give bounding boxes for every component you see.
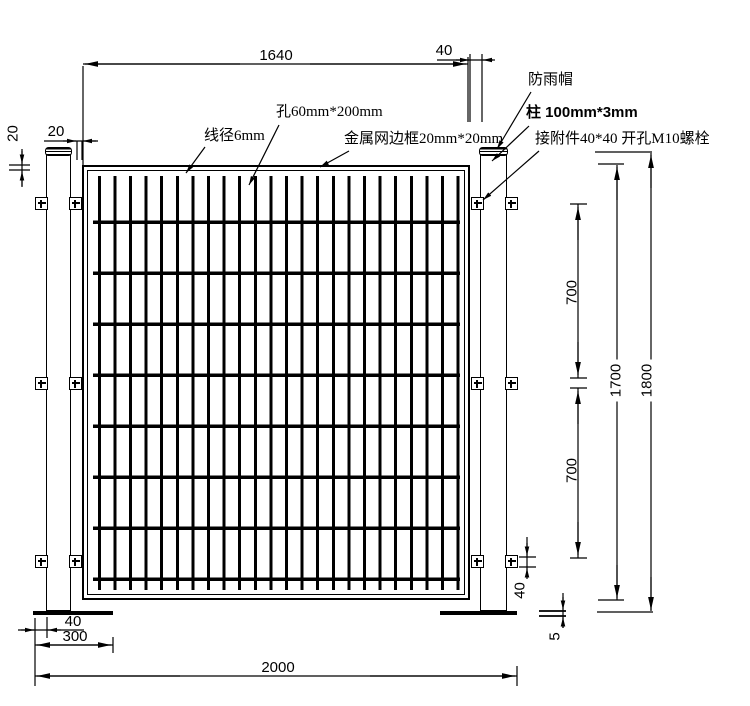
dim-text-clip-spacing-upper: 700 — [565, 276, 580, 310]
dim-20-horizontal — [44, 141, 98, 160]
label-wire-diameter: 线径6mm — [204, 129, 265, 144]
dim-text-plate-thickness: 5 — [548, 629, 563, 645]
dim-1640 — [83, 57, 468, 192]
dim-text-mesh-height: 1700 — [609, 360, 624, 402]
dim-text-clip-spacing-lower: 700 — [565, 454, 580, 488]
dim-text-overall-width: 2000 — [243, 660, 313, 675]
label-post-spec: 柱 100mm*3mm — [526, 105, 638, 120]
label-mesh-hole: 孔60mm*200mm — [276, 105, 383, 120]
dim-5-plate — [539, 593, 566, 628]
dim-text-clip-height: 40 — [513, 578, 528, 604]
dim-text-panel-width: 1640 — [241, 48, 311, 63]
label-attachment: 接附件40*40 开孔M10螺栓 — [535, 132, 710, 147]
dim-text-post-height: 1800 — [640, 360, 655, 402]
fence-technical-drawing: 1640 40 20 20 700 700 1700 1800 40 5 200… — [0, 0, 750, 706]
dim-40-right — [519, 537, 536, 579]
dim-text-plate-width: 300 — [52, 629, 98, 644]
dim-text-panel-post-gap: 40 — [430, 43, 458, 58]
dim-20-vertical — [9, 149, 30, 187]
dim-text-plate-edge-offset: 40 — [58, 614, 88, 629]
label-rain-cap: 防雨帽 — [528, 73, 573, 88]
label-mesh-frame: 金属网边框20mm*20mm — [344, 132, 503, 147]
dim-text-post-mesh-gap: 20 — [42, 124, 70, 139]
dim-text-frame-edge: 20 — [6, 119, 21, 149]
